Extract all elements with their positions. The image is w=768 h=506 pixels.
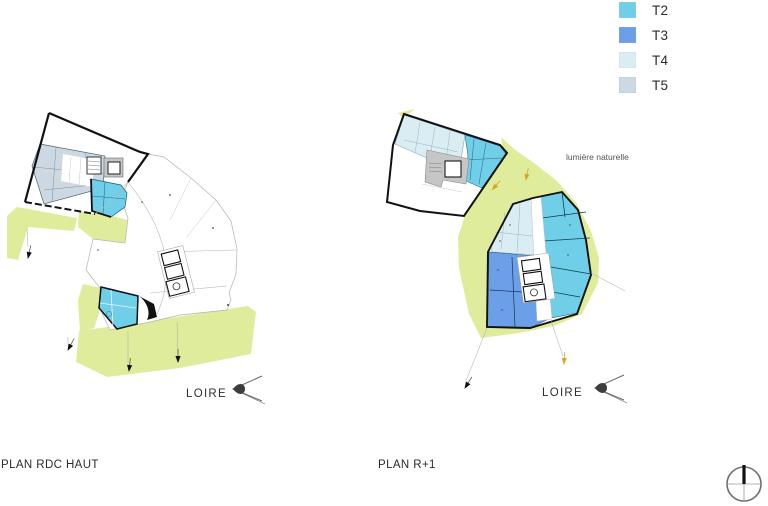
legend-item-t4: T4 xyxy=(619,52,668,68)
legend-swatch-t3 xyxy=(619,27,636,43)
legend-label-t4: T4 xyxy=(652,53,668,68)
natural-light-label: lumière naturelle xyxy=(566,152,629,162)
loire-label: LOIRE xyxy=(542,387,583,399)
floor-plan-r1: lumière naturelle LOIRE xyxy=(370,100,730,410)
legend-label-t2: T2 xyxy=(652,3,668,18)
plan-title-right: PLAN R+1 xyxy=(378,459,436,471)
legend-label-t5: T5 xyxy=(652,78,668,93)
plan-title-left: PLAN RDC HAUT xyxy=(1,459,99,471)
legend: T2 T3 T4 T5 xyxy=(619,2,668,102)
legend-item-t5: T5 xyxy=(619,77,668,93)
view-direction-icon xyxy=(595,375,627,403)
legend-swatch-t2 xyxy=(619,2,636,18)
floor-plan-rdc-haut: LOIRE xyxy=(0,100,340,410)
loire-label: LOIRE xyxy=(186,388,227,400)
legend-swatch-t5 xyxy=(619,77,636,93)
legend-swatch-t4 xyxy=(619,52,636,68)
legend-label-t3: T3 xyxy=(652,28,668,43)
legend-item-t2: T2 xyxy=(619,2,668,18)
view-direction-icon xyxy=(233,376,265,404)
stair-elevator-core xyxy=(87,157,123,177)
legend-item-t3: T3 xyxy=(619,27,668,43)
architectural-plans-page: LOIRE xyxy=(0,0,768,506)
central-stair-core xyxy=(517,253,555,303)
north-compass-icon xyxy=(720,460,768,506)
